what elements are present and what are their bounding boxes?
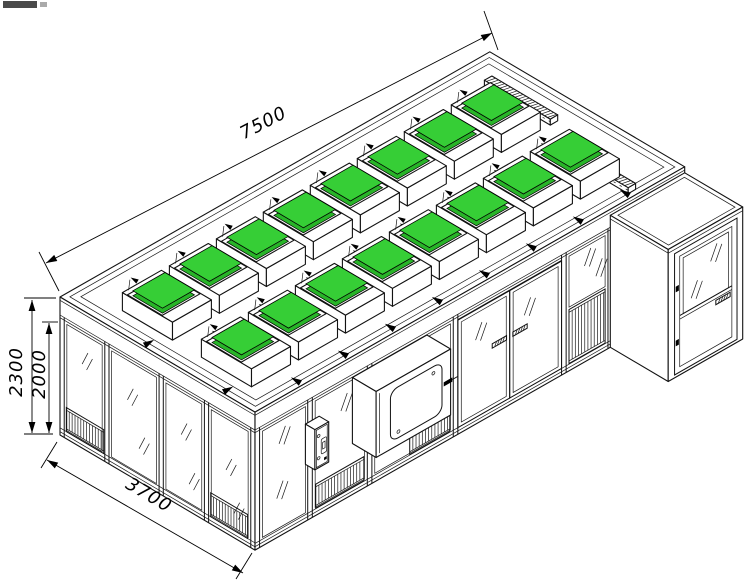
control-panel — [305, 416, 328, 470]
print-artifact — [3, 1, 47, 8]
clean-booth-isometric-drawing: 7500230020003700 — [0, 0, 756, 582]
dimension-length: 7500 — [237, 102, 291, 144]
technical-drawing-canvas: 7500230020003700 — [0, 0, 756, 582]
dimension-overall-height: 2300 — [6, 347, 27, 397]
clean-booth — [60, 52, 743, 550]
dimension-wall-height: 2000 — [29, 349, 50, 399]
entry-module — [610, 173, 742, 382]
